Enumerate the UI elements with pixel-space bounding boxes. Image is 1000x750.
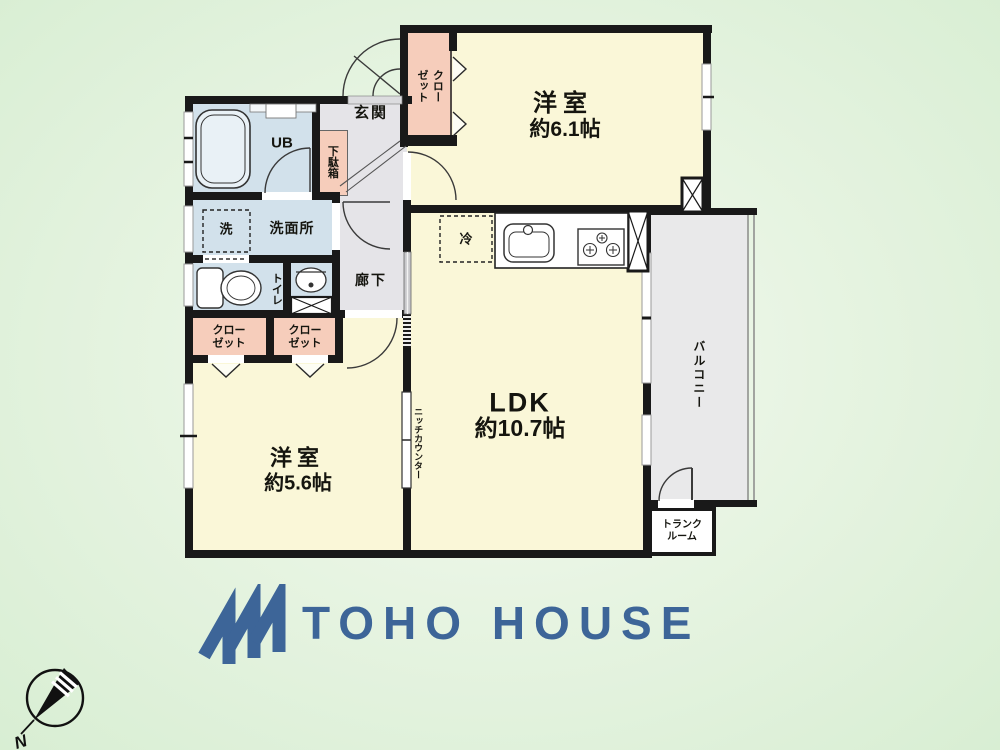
closet-left-label: クロー ゼット [213, 324, 246, 349]
washbasin-icon [296, 268, 326, 292]
niche-counter-label: ニッチカウンター [413, 407, 423, 479]
kitchen-counter [495, 213, 628, 268]
trunk-room-label: トランク ルーム [662, 520, 702, 543]
bedroom1-size: 約6.1帖 [529, 118, 600, 142]
fridge-label: 冷 [459, 233, 472, 248]
bedroom1-name: 洋室 [533, 90, 593, 118]
toilet-icon [197, 268, 261, 308]
bedroom2-size: 約5.6帖 [264, 473, 332, 496]
entrance-label: 玄関 [354, 104, 388, 121]
toho-house-logo-icon [196, 584, 300, 672]
balcony-label: バルコニー [691, 340, 705, 410]
niche-counter-strip [402, 392, 411, 488]
bathtub-icon [196, 104, 316, 188]
shoe-cabinet-label: 下駄箱 [326, 146, 339, 179]
logo-text: TOHO HOUSE [302, 596, 772, 650]
ldk-size: 約10.7帖 [475, 415, 566, 441]
closet-right-label: クロー ゼット [289, 324, 322, 349]
closet-top-label: クロー ゼット [414, 70, 445, 103]
toilet-label: トイレ [270, 273, 283, 306]
unit-bath-label: UB [271, 134, 293, 151]
washroom-label: 洗面所 [270, 220, 315, 236]
compass-north-label: N [12, 731, 30, 750]
floorplan-page: 洋室 約6.1帖 LDK 約10.7帖 洋室 約5.6帖 玄関 下駄箱 クロー … [0, 0, 1000, 750]
windows [180, 64, 714, 488]
sliding-door [404, 252, 411, 314]
bedroom2-name: 洋室 [270, 445, 324, 470]
balcony-railing [748, 215, 754, 500]
entrance-step [340, 141, 406, 192]
hallway-label: 廊下 [355, 272, 387, 288]
north-compass-icon: N [10, 650, 114, 750]
washer-label: 洗 [219, 223, 232, 238]
